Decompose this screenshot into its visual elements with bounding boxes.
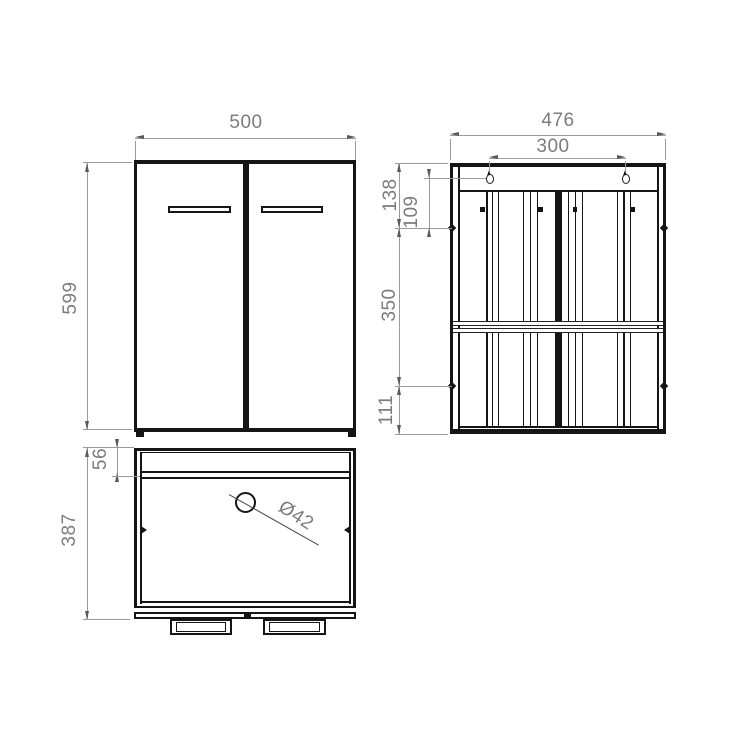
plan-inner-bottom [141,601,349,603]
back-slat-line-3-0 [523,191,525,321]
back-mid-rail-1 [453,321,663,326]
back-slat-line-8-0 [582,191,584,321]
back-slat-line-9-1 [617,333,619,426]
screw-dot-4 [631,207,636,212]
door-handle-left [168,206,231,213]
back-slat-line-1-0 [492,191,494,321]
arrow-300-left [489,155,498,159]
front-door-divider [243,164,249,428]
dim-front-height: 599 [60,268,82,328]
ext-300-left [489,161,490,172]
arrow-56-bottom [115,473,119,482]
screw-dot-2 [538,207,543,212]
plan-inner-top [140,452,350,453]
back-slat-line-5-1 [537,333,539,426]
arrow-476-right [657,132,666,136]
back-slat-line-8-1 [582,333,584,426]
front-foot-right [348,432,356,437]
back-center-batten-lower [555,333,562,426]
keyhole-left-icon [486,174,494,184]
plan-rail-line-1 [141,471,349,473]
ext-500-left [135,141,136,160]
dim-line-500 [135,138,356,139]
dim-cam-to-cam: 350 [379,275,401,335]
back-slat-line-10-0 [623,191,625,321]
dim-line-109 [429,170,430,236]
arrow-599-top [85,163,89,172]
back-strip-left [458,167,460,429]
ext-chain-bottom [395,434,448,435]
ext-387-bottom [83,619,130,620]
back-slat-line-6-1 [568,333,570,426]
back-slat-line-6-0 [568,191,570,321]
back-slat-line-0-0 [486,191,488,321]
dim-front-width: 500 [216,112,276,134]
ext-500-right [355,141,356,160]
keyhole-right-icon [622,174,630,184]
cabinet-technical-drawing: 500 599 Ø42 56 387 [0,0,740,740]
arrow-476-left [450,132,459,136]
ext-chain-cam-bottom [395,386,452,387]
back-slat-line-4-0 [530,191,532,321]
back-bottom-rail-line [459,426,657,428]
dim-plan-depth: 387 [59,500,81,560]
plan-cam-notch-left [141,526,147,534]
arrow-chain-386b [397,386,401,395]
ext-300-right [625,161,626,172]
ext-109-keyhole [424,178,486,179]
back-slat-line-7-1 [575,333,577,426]
plan-cam-notch-right [344,526,350,534]
back-slat-line-1-1 [492,333,494,426]
arrow-chain-top [397,163,401,172]
door-handle-right [261,206,323,213]
ext-476-left [450,139,451,160]
arrow-500-left [135,135,144,139]
screw-dot-1 [480,207,485,212]
back-slat-line-10-1 [623,333,625,426]
ext-56-bottom [112,476,140,477]
back-slat-line-2-1 [498,333,500,426]
arrow-300-right [617,155,626,159]
ext-387-top [83,447,134,448]
back-slat-line-0-1 [486,333,488,426]
front-foot-left [136,432,144,437]
dim-back-width: 476 [528,110,588,132]
dim-line-387 [87,448,88,620]
ext-476-right [665,139,666,160]
back-strip-right [657,167,659,429]
back-slat-line-4-1 [530,333,532,426]
dim-keyhole-spacing: 300 [523,136,583,158]
ext-chain-top [395,163,448,164]
arrow-387-top [85,448,89,457]
back-center-batten-upper [555,191,562,321]
plan-foot-right-inner [269,622,320,632]
arrow-109-bottom [427,228,431,237]
screw-dot-3 [573,207,578,212]
plan-rail-line-2 [141,477,349,479]
dim-line-599 [87,163,88,430]
ext-599-top [83,162,132,163]
arrow-500-right [347,135,356,139]
plan-bottom-bar-center [244,612,251,619]
dim-keyhole-to-cam: 109 [401,182,423,242]
dim-line-300 [489,158,626,159]
back-slat-line-11-1 [630,333,632,426]
back-slat-line-2-0 [498,191,500,321]
plan-foot-left-inner [176,622,226,632]
dim-cam-to-bottom: 111 [376,380,398,440]
dim-plan-front-rail: 56 [90,429,112,489]
back-slat-line-9-0 [617,191,619,321]
back-slat-line-3-1 [523,333,525,426]
